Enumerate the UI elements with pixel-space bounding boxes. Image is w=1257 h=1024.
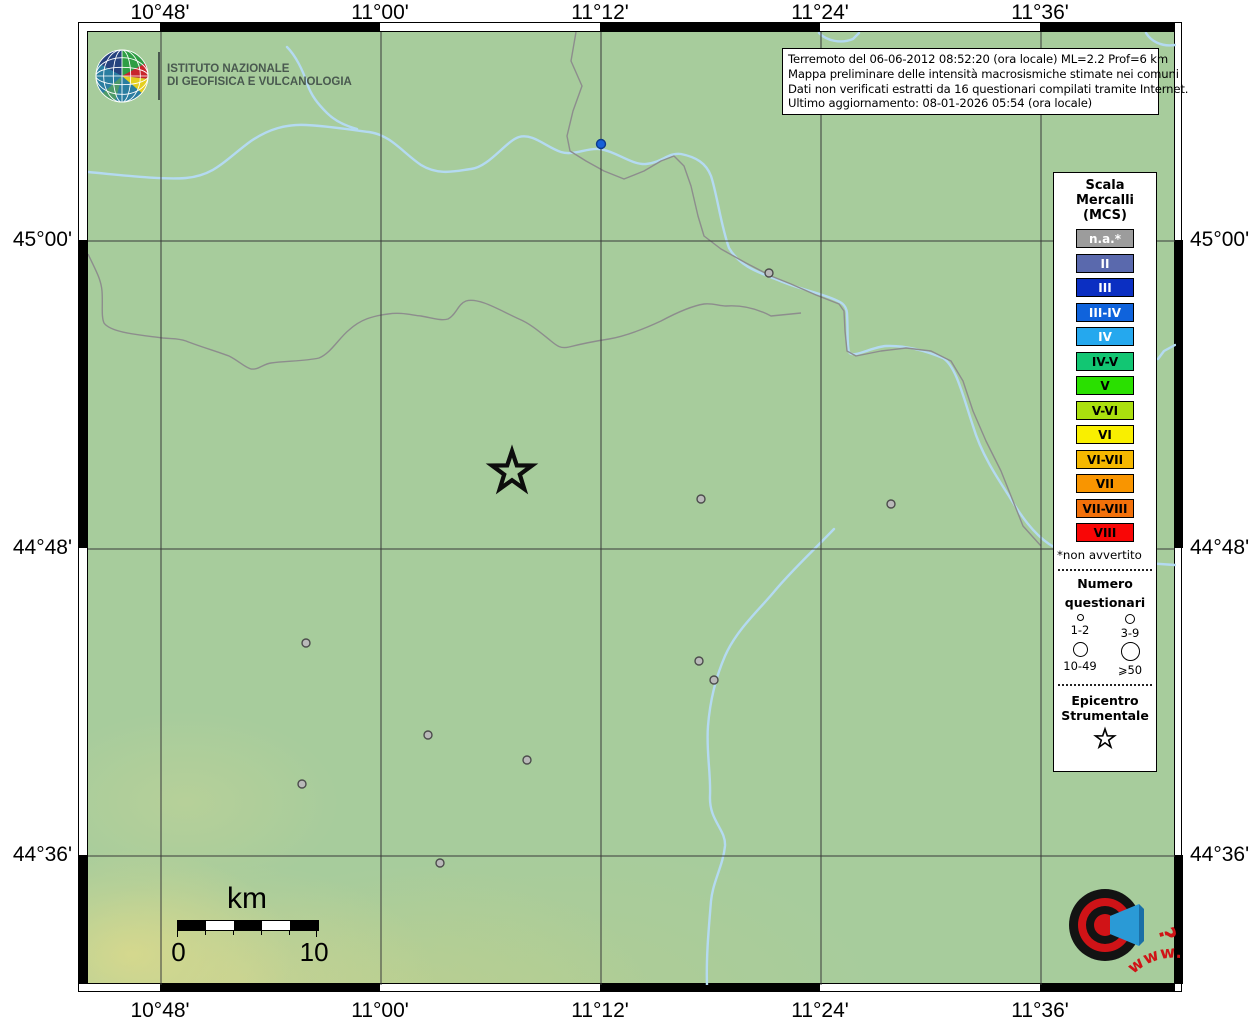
- info-line: Terremoto del 06-06-2012 08:52:20 (ora l…: [788, 52, 1153, 67]
- lat-label: 44°48': [0, 536, 72, 560]
- scale-segment: [178, 921, 206, 930]
- lon-label: 11°00': [351, 1, 409, 25]
- legend-divider: [1058, 684, 1152, 686]
- intensity-swatch-vi-vii: VI-VII: [1076, 450, 1134, 469]
- na-questionnaire-dot: [424, 731, 432, 739]
- lat-label: 44°36': [1190, 843, 1249, 867]
- legend-footnote: *non avvertito: [1054, 548, 1156, 562]
- lon-label: 11°36': [1011, 1, 1069, 25]
- frame-band: [160, 23, 380, 31]
- grid-lines: [88, 32, 1175, 985]
- intensity-swatch-iii-iv: III-IV: [1076, 303, 1134, 322]
- map-page: ISTITUTO NAZIONALE DI GEOFISICA E VULCAN…: [0, 0, 1257, 1024]
- watermark-icon: www.haisentitoilterremoto.it ?: [1030, 850, 1180, 1000]
- intensity-swatch-viii: VIII: [1076, 523, 1134, 542]
- map-canvas: [87, 31, 1175, 984]
- na-questionnaire-dot: [695, 657, 703, 665]
- scale-end: 10: [300, 937, 329, 968]
- scale-bar-ruler: [177, 920, 319, 931]
- legend-title: ScalaMercalli(MCS): [1054, 178, 1156, 223]
- map-layers: [88, 32, 1176, 985]
- lon-label: 11°24': [791, 999, 849, 1023]
- na-questionnaire-dot: [887, 500, 895, 508]
- na-questionnaire-dot: [765, 269, 773, 277]
- ingv-name: ISTITUTO NAZIONALE DI GEOFISICA E VULCAN…: [167, 63, 352, 90]
- ingv-name-line2: DI GEOFISICA E VULCANOLOGIA: [167, 76, 352, 90]
- size-circle-icon: [1121, 642, 1140, 661]
- size-circle-icon: [1073, 642, 1088, 657]
- size-key-1-2: 1-2: [1058, 614, 1102, 640]
- size-key-10-49: 10-49: [1058, 642, 1102, 677]
- lon-label: 11°00': [351, 999, 409, 1023]
- intensity-swatch-iii: III: [1076, 278, 1134, 297]
- lat-label: 44°36': [0, 843, 72, 867]
- legend: ScalaMercalli(MCS) n.a.*IIIIIIII-IVIVIV-…: [1053, 172, 1157, 772]
- intensity-swatch-n-a-: n.a.*: [1076, 229, 1134, 248]
- lat-label: 45°00': [1190, 228, 1249, 252]
- size-key-3-9: 3-9: [1108, 614, 1152, 640]
- lon-label: 11°24': [791, 1, 849, 25]
- ingv-separator: [158, 52, 160, 100]
- scale-segment: [206, 921, 234, 930]
- epicenter-star-icon: [492, 451, 532, 489]
- size-circle-icon: [1077, 614, 1084, 621]
- frame-band: [79, 240, 87, 548]
- scale-segment: [234, 921, 262, 930]
- na-questionnaire-dot: [436, 859, 444, 867]
- scale-start: 0: [171, 937, 185, 968]
- intensity-swatch-ii: II: [1076, 254, 1134, 273]
- epicenter-star: [492, 451, 532, 489]
- frame-band: [600, 23, 820, 31]
- questionnaire-size-key: 1-23-910-49⩾50: [1054, 614, 1156, 677]
- na-questionnaire-dot: [523, 756, 531, 764]
- intensity-scale: n.a.*IIIIIIII-IVIVIV-VVV-VIVIVI-VIIVIIVI…: [1054, 229, 1156, 542]
- questionnaire-count-title: Numeroquestionari: [1054, 574, 1156, 612]
- na-questionnaire-dot: [298, 780, 306, 788]
- lat-label: 44°48': [1190, 536, 1249, 560]
- lon-label: 11°12': [571, 999, 629, 1023]
- epicenter-key-title: EpicentroStrumentale: [1054, 693, 1156, 723]
- legend-divider: [1058, 569, 1152, 571]
- intensity-dot: [597, 140, 606, 149]
- intensity-swatch-v: V: [1076, 376, 1134, 395]
- intensity-swatch-vi: VI: [1076, 425, 1134, 444]
- na-questionnaire-dot: [697, 495, 705, 503]
- frame-band: [79, 855, 87, 984]
- epicenter-key-icon: [1092, 725, 1118, 751]
- lon-label: 10°48': [130, 1, 189, 25]
- frame-band: [600, 984, 820, 992]
- scale-bar-unit: km: [177, 882, 317, 916]
- lon-label: 10°48': [130, 999, 189, 1023]
- event-info-box: Terremoto del 06-06-2012 08:52:20 (ora l…: [782, 48, 1159, 115]
- na-questionnaire-dot: [302, 639, 310, 647]
- frame-band: [1175, 240, 1183, 548]
- ingv-logo: ISTITUTO NAZIONALE DI GEOFISICA E VULCAN…: [93, 47, 352, 105]
- intensity-swatch-v-vi: V-VI: [1076, 401, 1134, 420]
- intensity-swatch-iv-v: IV-V: [1076, 352, 1134, 371]
- question-mark-icon: ?: [1152, 925, 1179, 944]
- lon-label: 11°12': [571, 1, 629, 25]
- na-questionnaire-dot: [710, 676, 718, 684]
- size-key-⩾50: ⩾50: [1108, 642, 1152, 677]
- info-line: Ultimo aggiornamento: 08-01-2026 05:54 (…: [788, 96, 1153, 111]
- haisentitoilterremoto-logo: www.haisentitoilterremoto.it ?: [1030, 850, 1180, 1005]
- scale-labels: 0 10: [177, 937, 317, 967]
- scale-segment: [290, 921, 318, 930]
- ingv-name-line1: ISTITUTO NAZIONALE: [167, 63, 352, 77]
- intensity-swatch-iv: IV: [1076, 327, 1134, 346]
- frame-band: [160, 984, 380, 992]
- intensity-swatch-vii-viii: VII-VIII: [1076, 499, 1134, 518]
- lat-label: 45°00': [0, 228, 72, 252]
- scale-bar: km 0 10: [172, 882, 332, 967]
- ingv-globe-icon: [93, 47, 151, 105]
- intensity-swatch-vii: VII: [1076, 474, 1134, 493]
- info-line: Dati non verificati estratti da 16 quest…: [788, 82, 1153, 97]
- size-circle-icon: [1125, 614, 1135, 624]
- questionnaire-dots: [298, 140, 895, 868]
- info-line: Mappa preliminare delle intensità macros…: [788, 67, 1153, 82]
- scale-segment: [262, 921, 290, 930]
